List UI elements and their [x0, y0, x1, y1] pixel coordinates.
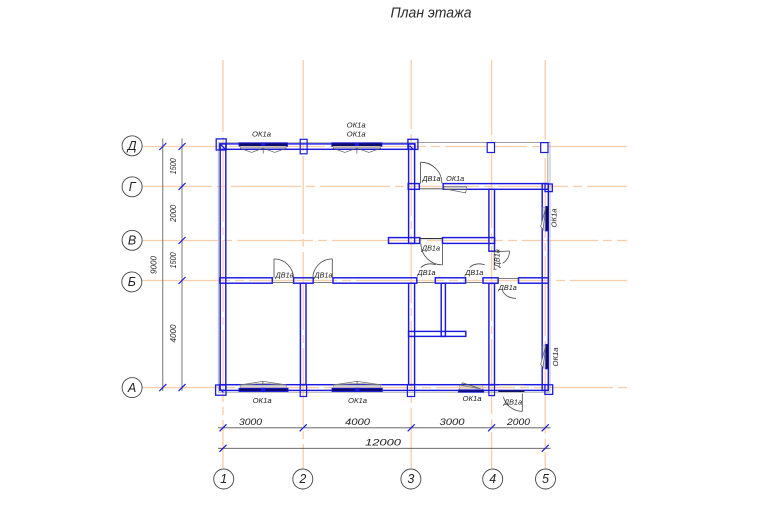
svg-text:План этажа: План этажа	[391, 5, 472, 22]
svg-text:3000: 3000	[440, 417, 465, 427]
svg-text:ДВ1а: ДВ1а	[421, 174, 440, 183]
svg-text:ОК1а: ОК1а	[446, 174, 464, 183]
svg-text:ДВ1а: ДВ1а	[498, 283, 517, 292]
svg-text:1500: 1500	[168, 158, 178, 174]
svg-text:А: А	[127, 381, 136, 395]
svg-text:Б: Б	[128, 275, 136, 289]
svg-text:В: В	[128, 234, 136, 248]
svg-text:ОК1а: ОК1а	[347, 121, 366, 130]
svg-text:ОК1а: ОК1а	[252, 130, 271, 139]
svg-text:ОК1а: ОК1а	[550, 209, 559, 228]
svg-text:ДВ1а: ДВ1а	[275, 271, 294, 280]
svg-text:1: 1	[220, 472, 227, 486]
svg-text:ОК1а: ОК1а	[253, 396, 272, 405]
svg-text:ДВ1а: ДВ1а	[464, 268, 483, 277]
svg-text:4000: 4000	[345, 417, 370, 427]
svg-text:ДВ1а: ДВ1а	[417, 268, 436, 277]
svg-text:5: 5	[542, 472, 549, 486]
svg-text:4: 4	[489, 472, 496, 486]
svg-text:2: 2	[298, 472, 306, 486]
svg-text:Г: Г	[129, 180, 137, 194]
svg-text:2000: 2000	[168, 205, 178, 223]
svg-text:ДВ1а: ДВ1а	[503, 397, 522, 406]
svg-text:ОК1а: ОК1а	[551, 348, 560, 367]
svg-text:3: 3	[407, 472, 414, 486]
svg-text:4000: 4000	[168, 324, 178, 342]
svg-text:ОК1а: ОК1а	[463, 394, 482, 403]
svg-text:ОК1а: ОК1а	[348, 396, 367, 405]
svg-text:2000: 2000	[506, 417, 530, 427]
svg-text:ДВ1а: ДВ1а	[313, 271, 332, 280]
svg-text:3000: 3000	[239, 417, 262, 427]
svg-text:ДВ1а: ДВ1а	[421, 244, 440, 253]
svg-text:1500: 1500	[168, 252, 178, 268]
svg-text:Д: Д	[126, 139, 137, 153]
svg-text:9000: 9000	[149, 256, 159, 274]
svg-text:ДВ1а: ДВ1а	[493, 249, 502, 268]
svg-text:12000: 12000	[365, 438, 401, 448]
svg-text:ОК1а: ОК1а	[347, 130, 366, 139]
